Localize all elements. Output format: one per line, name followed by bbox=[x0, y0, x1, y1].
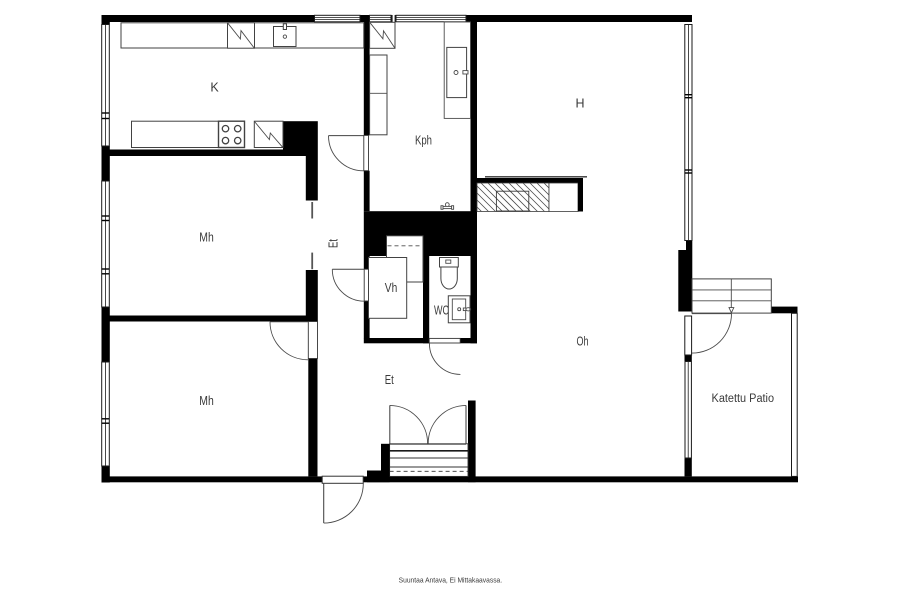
svg-text:Vh: Vh bbox=[385, 281, 398, 295]
svg-text:Et: Et bbox=[327, 239, 341, 248]
svg-text:K: K bbox=[210, 81, 219, 95]
svg-text:Katettu Patio: Katettu Patio bbox=[712, 393, 775, 405]
svg-text:H: H bbox=[575, 97, 584, 111]
svg-text:Mh: Mh bbox=[199, 231, 214, 245]
svg-text:Oh: Oh bbox=[577, 335, 589, 349]
svg-text:WC: WC bbox=[434, 304, 449, 318]
svg-text:Suuntaa Antava, Ei Mittakaavas: Suuntaa Antava, Ei Mittakaavassa. bbox=[399, 576, 503, 585]
svg-text:Et: Et bbox=[385, 373, 394, 387]
svg-text:Mh: Mh bbox=[199, 394, 214, 408]
svg-text:Kph: Kph bbox=[415, 134, 432, 148]
